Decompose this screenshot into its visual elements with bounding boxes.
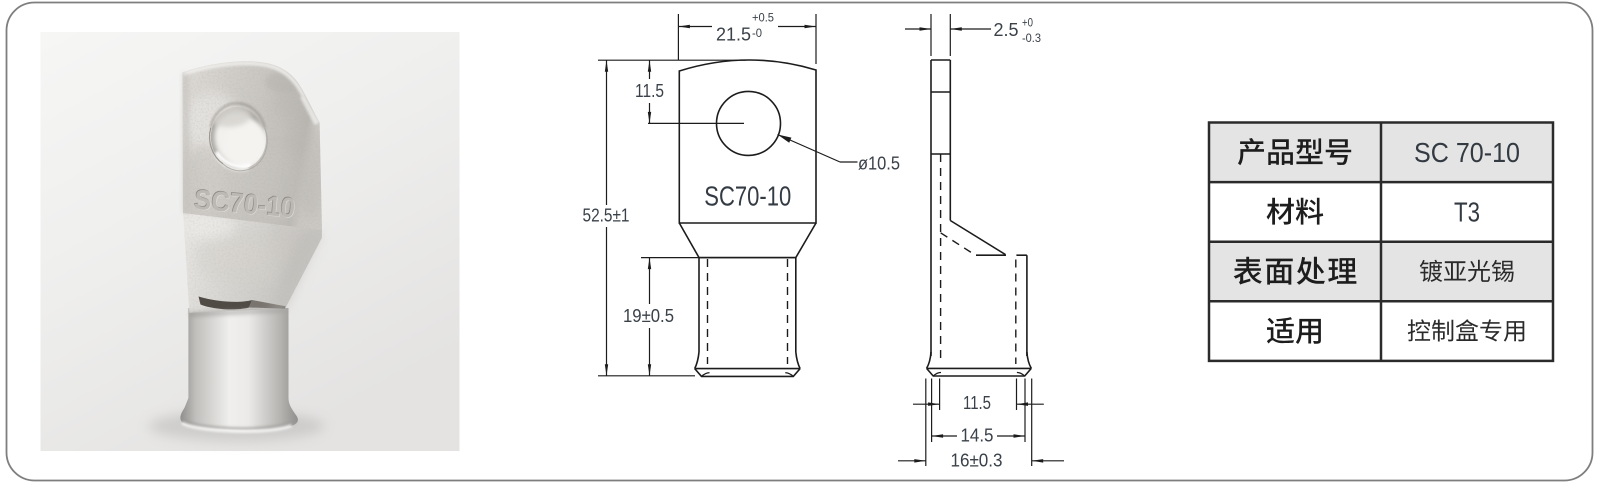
svg-text:T3: T3 [1454, 197, 1480, 228]
svg-text:2.5: 2.5 [994, 20, 1019, 40]
svg-text:19±0.5: 19±0.5 [623, 306, 674, 326]
svg-text:11.5: 11.5 [963, 393, 991, 413]
svg-text:16±0.3: 16±0.3 [951, 450, 1003, 470]
svg-text:-0: -0 [752, 28, 762, 40]
svg-text:+0.5: +0.5 [752, 13, 774, 25]
svg-text:52.5±1: 52.5±1 [583, 206, 630, 226]
svg-text:14.5: 14.5 [961, 426, 994, 446]
svg-text:21.5: 21.5 [716, 24, 751, 44]
svg-text:SC70-10: SC70-10 [704, 181, 791, 212]
svg-text:11.5: 11.5 [635, 81, 664, 101]
svg-text:-0.3: -0.3 [1022, 33, 1041, 45]
svg-text:+0: +0 [1022, 17, 1033, 29]
svg-text:SC 70-10: SC 70-10 [1414, 137, 1520, 168]
svg-text:ø10.5: ø10.5 [858, 153, 900, 173]
